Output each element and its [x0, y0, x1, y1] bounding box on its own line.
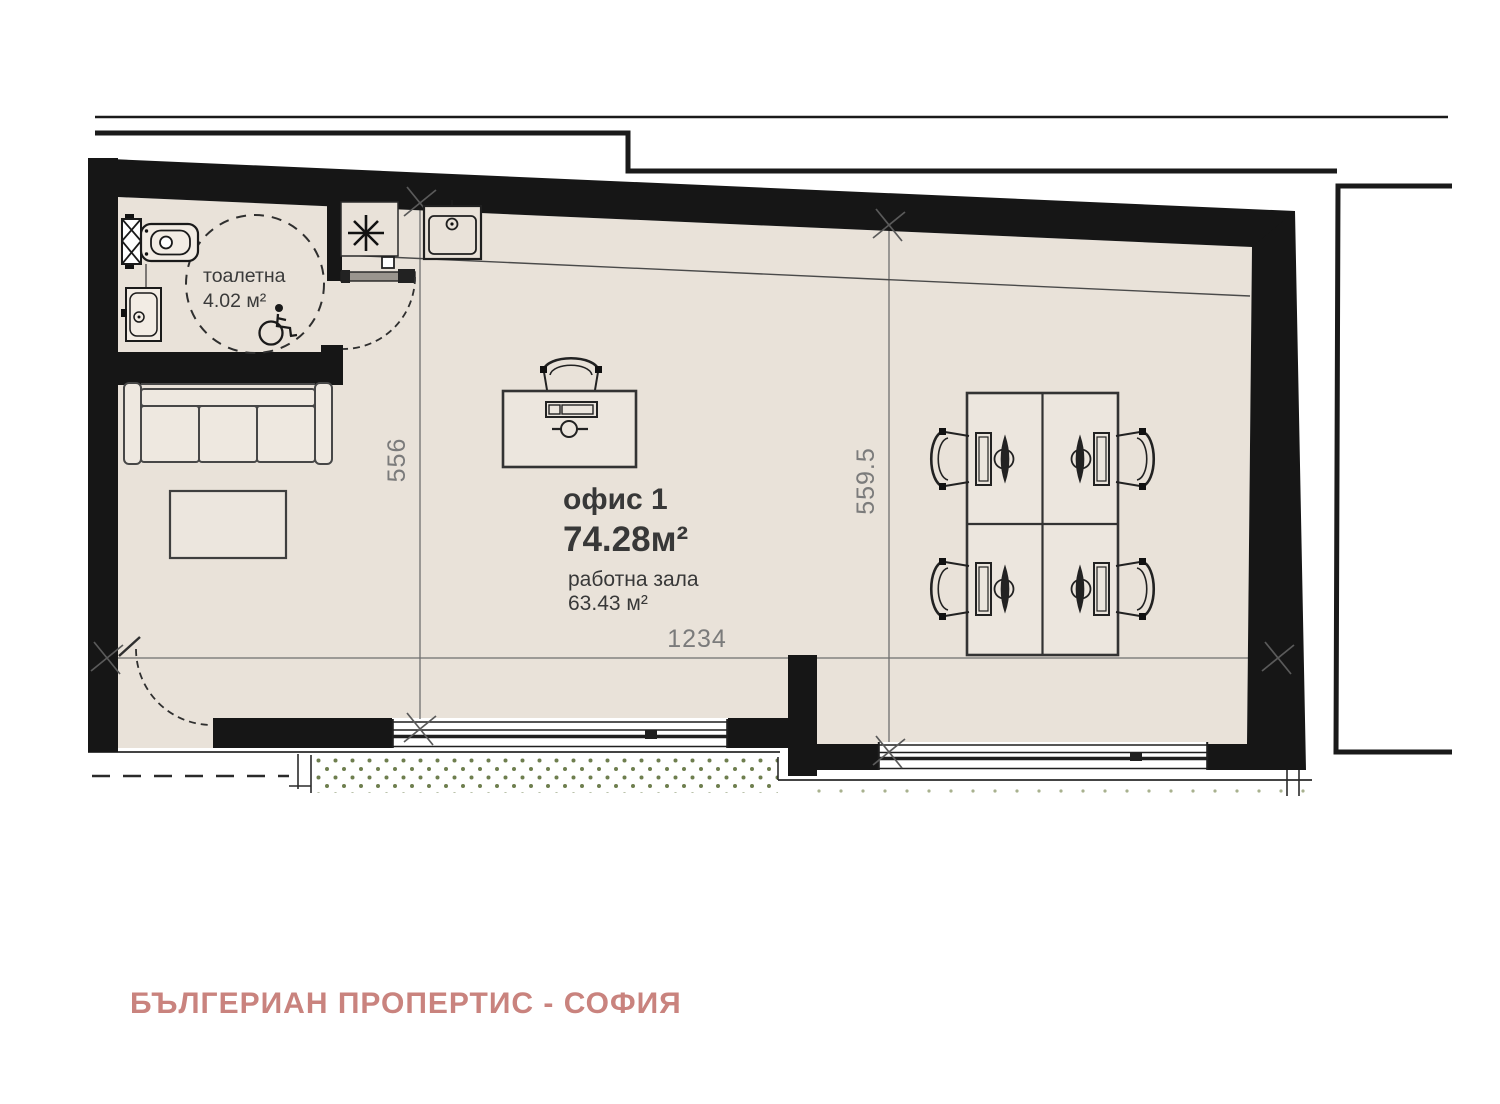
sofa [124, 383, 332, 464]
dim-right-vertical: 559.5 [852, 447, 880, 515]
kitchen-sink-icon [424, 200, 481, 259]
wall-left [88, 158, 118, 752]
neighbor-outline-right [1336, 186, 1452, 752]
office-area-label: 74.28м² [563, 520, 688, 559]
window-right [878, 742, 1208, 771]
window-left [392, 719, 728, 749]
door-stop [382, 257, 394, 268]
toilet-name-label: тоалетна [203, 265, 286, 287]
wall-pier-left-arm [728, 718, 788, 748]
wall-toilet-right [327, 197, 342, 281]
coffee-table [170, 491, 286, 558]
toilet-area-label: 4.02 м² [203, 290, 267, 312]
zone-area-label: 63.43 м² [568, 592, 648, 615]
manager-desk [503, 391, 636, 467]
boiler-closet [341, 202, 398, 256]
footer-brand: БЪЛГЕРИАН ПРОПЕРТИС - СОФИЯ [130, 987, 682, 1020]
floor-plan-drawing: тоалетна 4.02 м² [0, 0, 1500, 1104]
neighbor-outline-top [95, 117, 1448, 171]
radiator-icon [122, 214, 141, 269]
window-mullion-mark [1130, 752, 1142, 761]
zone-name-label: работна зала [568, 568, 699, 591]
wall-bottom-left [213, 718, 392, 748]
office-name-label: офис 1 [563, 483, 668, 516]
dim-left-vertical: 556 [383, 438, 411, 483]
washbasin-icon [121, 288, 161, 341]
wall-pier-vertical [788, 655, 817, 776]
dim-horizontal: 1234 [667, 625, 727, 653]
floor-plan-page: тоалетна 4.02 м² [0, 0, 1500, 1104]
window-mullion-mark [645, 730, 657, 739]
step-marker [289, 754, 311, 793]
terrace-hatch-light [800, 784, 1310, 800]
wall-pier-right-arm [817, 744, 878, 770]
wc-toilet-icon [141, 224, 198, 261]
